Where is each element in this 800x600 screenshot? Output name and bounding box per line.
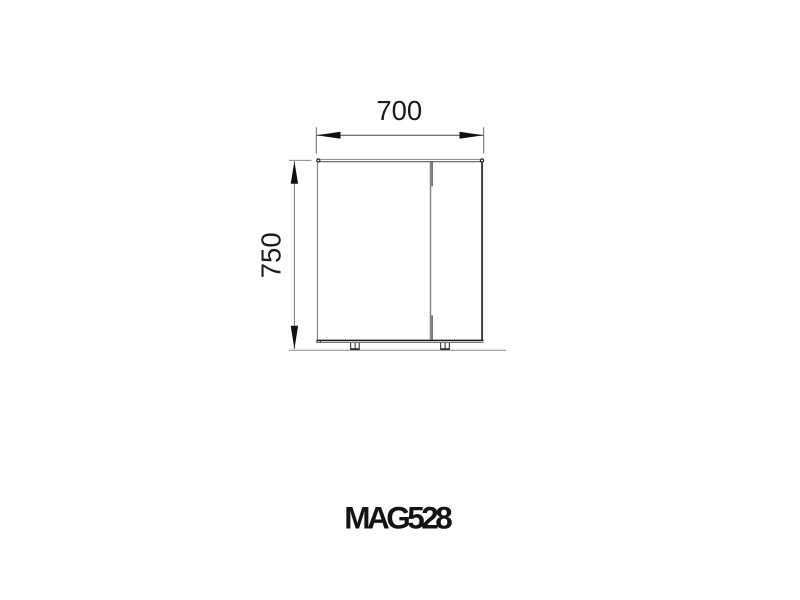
- svg-text:MAG528: MAG528: [344, 500, 452, 536]
- svg-text:750: 750: [256, 232, 287, 278]
- svg-text:700: 700: [376, 95, 422, 126]
